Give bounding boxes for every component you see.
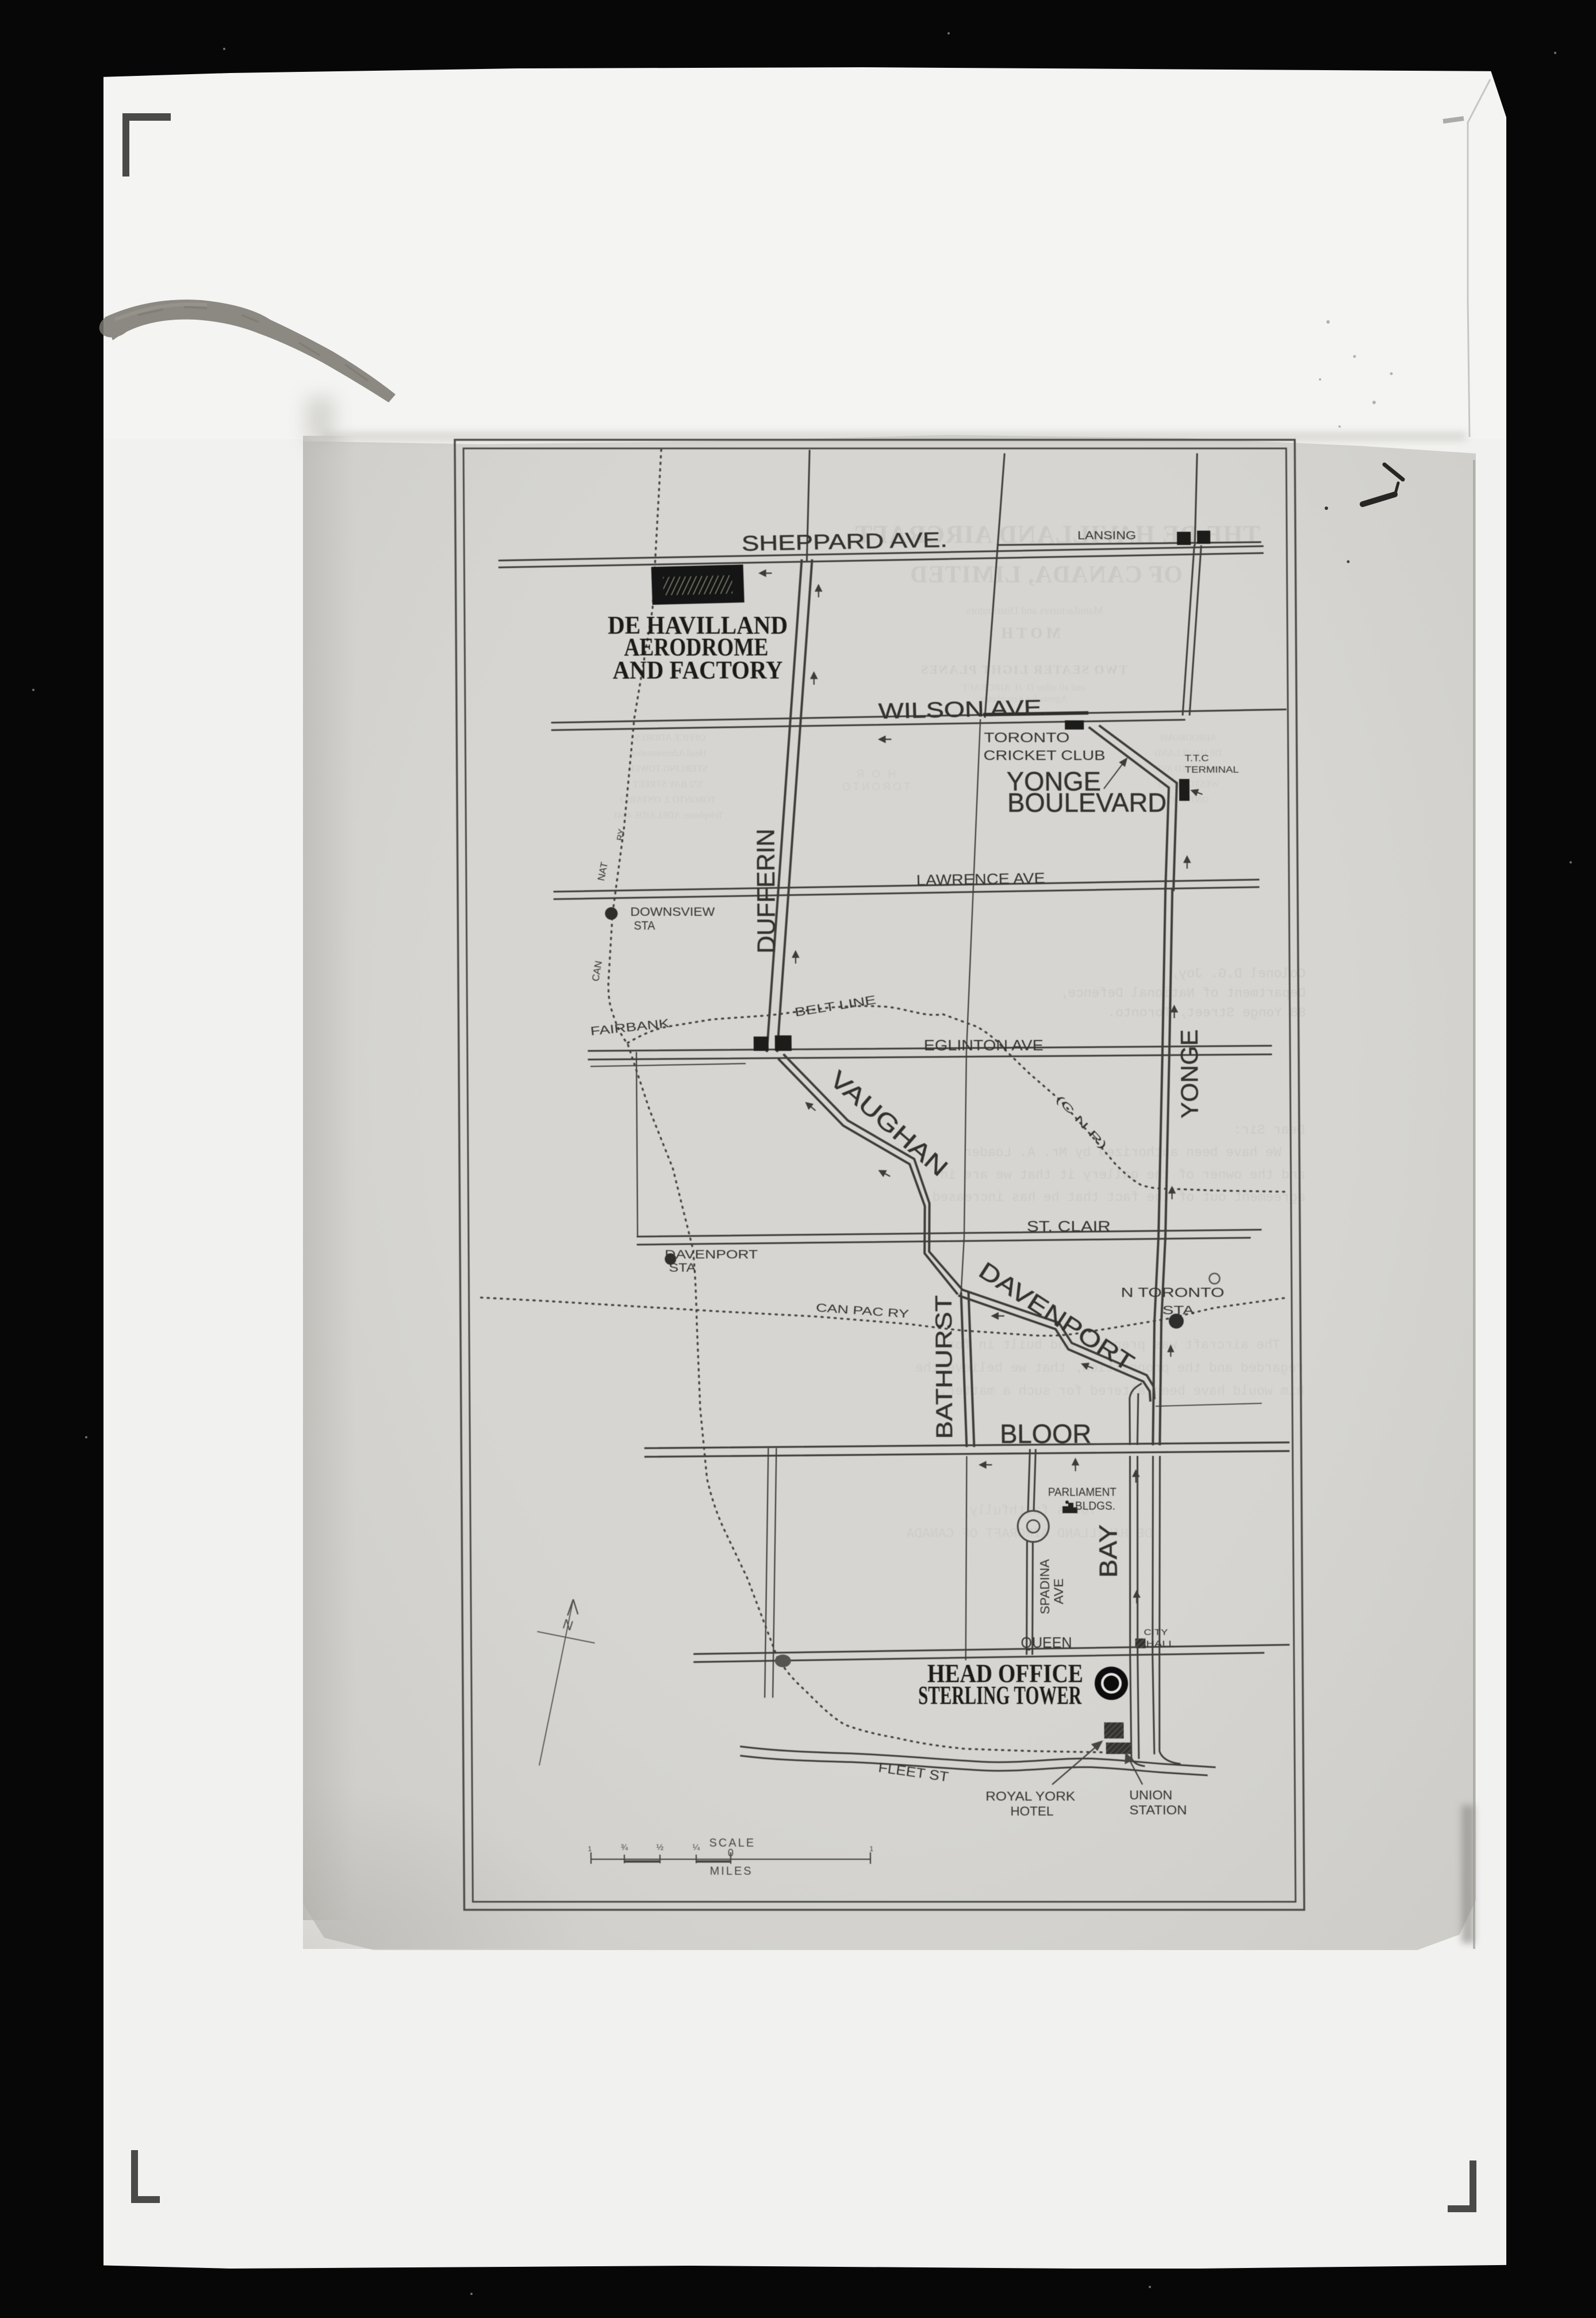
svg-text:STA: STA [669, 1261, 696, 1275]
svg-text:HALL: HALL [1146, 1639, 1175, 1649]
svg-text:AND FACTORY: AND FACTORY [612, 656, 782, 684]
svg-text:STA: STA [634, 919, 655, 932]
svg-text:DUFFERIN: DUFFERIN [751, 829, 780, 954]
svg-text:N: N [561, 1616, 575, 1634]
svg-text:NAT: NAT [596, 861, 610, 882]
svg-text:YONGE: YONGE [1176, 1030, 1203, 1119]
svg-text:VAUGHAN: VAUGHAN [825, 1065, 953, 1181]
svg-text:¾: ¾ [621, 1843, 628, 1852]
svg-text:1: 1 [588, 1845, 592, 1853]
svg-text:CRICKET CLUB: CRICKET CLUB [983, 748, 1105, 763]
svg-text:(C N R): (C N R) [1054, 1093, 1110, 1151]
svg-text:STERLING TOWER: STERLING TOWER [918, 1680, 1082, 1710]
svg-text:SPADINA: SPADINA [1038, 1559, 1053, 1614]
svg-text:FAIRBANK: FAIRBANK [590, 1017, 670, 1038]
svg-text:SHEPPARD AVE.: SHEPPARD AVE. [741, 528, 947, 555]
svg-text:TERMINAL: TERMINAL [1185, 765, 1239, 775]
svg-text:DAVENPORT: DAVENPORT [665, 1248, 758, 1261]
svg-text:STATION: STATION [1129, 1803, 1187, 1817]
svg-text:BELT LINE: BELT LINE [794, 993, 877, 1019]
svg-text:ST. CLAIR: ST. CLAIR [1027, 1218, 1111, 1235]
svg-text:¼: ¼ [693, 1843, 700, 1852]
svg-text:CITY: CITY [1144, 1628, 1168, 1637]
svg-text:BLDGS.: BLDGS. [1075, 1500, 1115, 1513]
svg-text:0: 0 [728, 1847, 734, 1859]
svg-text:QUEEN: QUEEN [1020, 1634, 1072, 1651]
svg-text:CAN: CAN [590, 960, 604, 983]
svg-text:½: ½ [657, 1843, 664, 1852]
svg-text:MILES: MILES [710, 1865, 753, 1878]
svg-text:TORONTO: TORONTO [984, 730, 1069, 746]
svg-text:1: 1 [869, 1845, 873, 1853]
svg-text:BOULEVARD: BOULEVARD [1007, 788, 1167, 818]
svg-text:ROYAL YORK: ROYAL YORK [985, 1789, 1076, 1803]
svg-text:UNION: UNION [1129, 1788, 1172, 1802]
svg-text:FLEET ST: FLEET ST [877, 1760, 950, 1785]
svg-text:T.T.C: T.T.C [1185, 754, 1209, 763]
svg-text:HOTEL: HOTEL [1010, 1804, 1053, 1818]
svg-text:DOWNSVIEW: DOWNSVIEW [630, 905, 715, 919]
svg-text:N TORONTO: N TORONTO [1121, 1285, 1225, 1300]
svg-text:BAY: BAY [1094, 1525, 1123, 1578]
svg-text:AVE: AVE [1052, 1579, 1066, 1605]
svg-text:WILSON AVE.: WILSON AVE. [878, 696, 1049, 724]
svg-text:LANSING: LANSING [1077, 529, 1136, 542]
svg-text:BATHURST: BATHURST [931, 1295, 958, 1439]
svg-text:RY: RY [615, 828, 627, 842]
svg-text:PARLIAMENT: PARLIAMENT [1048, 1486, 1117, 1499]
svg-text:STA: STA [1163, 1304, 1194, 1317]
svg-text:BLOOR: BLOOR [1000, 1419, 1091, 1449]
svg-text:LAWRENCE AVE: LAWRENCE AVE [916, 869, 1045, 889]
svg-text:EGLINTON AVE: EGLINTON AVE [924, 1037, 1043, 1054]
